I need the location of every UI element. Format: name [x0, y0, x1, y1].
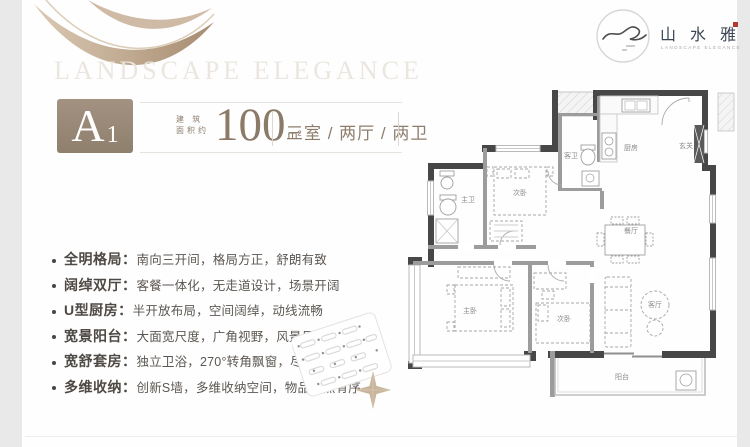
balcony-structure: [555, 358, 705, 395]
bullet-dot-icon: [52, 361, 56, 365]
room-label-dining: 餐厅: [624, 226, 638, 235]
bullet-dot-icon: [52, 335, 56, 339]
siteplan-stamp: [292, 312, 404, 418]
guest-bath-fixtures: [581, 145, 599, 186]
door-openings: [458, 169, 595, 283]
feature-item: 全明格局：南向三开间，格局方正，舒朗有致: [52, 249, 392, 275]
brand-logo-icon: [593, 6, 655, 64]
bedroom-top-furniture: [487, 167, 553, 241]
dining-furniture: [597, 217, 653, 263]
bullet-dot-icon: [52, 259, 56, 263]
unit-letter: A: [71, 103, 104, 149]
service-shaft: [718, 93, 734, 131]
room-label-balcony: 阳台: [615, 372, 629, 381]
footer-rule: [25, 436, 737, 437]
bullet-dot-icon: [52, 310, 56, 314]
room-label-bedroom-bottom: 次卧: [557, 314, 571, 323]
brand-seal-icon: [733, 22, 738, 27]
header-rule-bottom: [140, 152, 402, 153]
room-label-foyer: 玄关: [679, 141, 693, 150]
room-label-kitchen: 厨房: [624, 143, 638, 152]
header-divider-1: [272, 112, 273, 146]
room-label-living: 客厅: [648, 300, 662, 309]
bullet-dot-icon: [52, 284, 56, 288]
kitchen-fixtures: [600, 96, 658, 162]
living-furniture: [605, 277, 669, 347]
floorplan: 主卫 次卧 客卫 厨房 玄关 餐厅 主卧 次卧 客厅 阳台: [400, 85, 737, 400]
master-bedroom-furniture: [447, 267, 513, 331]
area-value: 100: [215, 106, 286, 146]
area-label: 建 筑 面积约: [176, 114, 209, 136]
brand-name-en: LANDSCAPE ELEGANCE: [661, 45, 741, 50]
master-bath-fixtures: [436, 171, 458, 243]
watermark-text: LANDSCAPE ELEGANCE: [54, 56, 404, 86]
room-label-master-bath: 主卫: [461, 195, 475, 204]
area-figure: 建 筑 面积约 100 m²: [176, 106, 302, 146]
room-label-master-bedroom: 主卧: [463, 306, 477, 315]
bullet-dot-icon: [52, 386, 56, 390]
room-label-bedroom-top: 次卧: [513, 188, 527, 197]
room-label-guest-bath: 客卫: [564, 151, 578, 160]
equipment-platform: [554, 92, 594, 116]
feature-item: 阔绰双厅：客餐一体化，无走道设计，场景开阔: [52, 275, 392, 301]
siteplan-miniature: [292, 312, 393, 398]
foyer-cabinet: [694, 125, 704, 163]
bedroom-bottom-furniture: [534, 273, 590, 343]
unit-badge: A 1: [57, 99, 133, 153]
unit-digit: 1: [107, 123, 119, 147]
flyer-page: { "page": {"outer_bg": "#e9e9e9", "card_…: [0, 0, 750, 447]
header-divider-2: [398, 112, 399, 146]
